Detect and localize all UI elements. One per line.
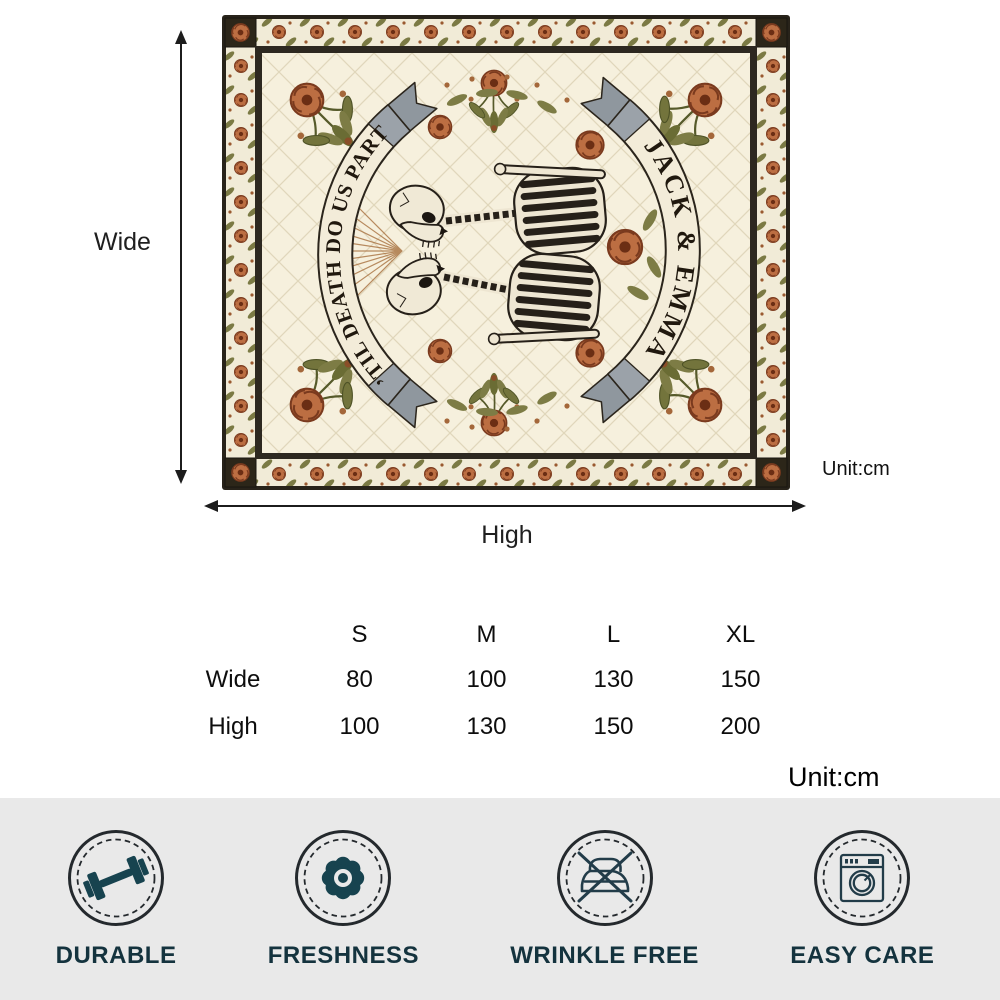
feature-easy-care: EASY CARE [790,828,934,970]
feature-bar: DURABLE FRESHNESS [0,798,1000,1000]
table-header-cell: XL [677,621,804,649]
table-header-cell: M [423,621,550,649]
table-row-label: High [170,713,296,741]
feature-label: EASY CARE [790,942,934,970]
feature-freshness: FRESHNESS [268,828,419,970]
dumbbell-icon [66,828,166,928]
table-cell: 130 [550,666,677,694]
feature-label: DURABLE [56,942,177,970]
table-cell: 150 [550,713,677,741]
feature-wrinkle-free: WRINKLE FREE [510,828,699,970]
high-label: High [470,521,544,550]
table-cell: 100 [423,666,550,694]
feature-durable: DURABLE [56,828,177,970]
table-cell: 80 [296,666,423,694]
table-cell: 130 [423,713,550,741]
wide-label: Wide [94,228,151,257]
table-header-cell: L [550,621,677,649]
vertical-dimension-arrow [170,28,192,486]
feature-label: FRESHNESS [268,942,419,970]
flower-icon [293,828,393,928]
size-table: S M L XL Wide 80 100 130 150 High 100 13… [170,614,804,750]
table-cell: 200 [677,713,804,741]
unit-label-diagram: Unit:cm [822,458,890,481]
horizontal-dimension-arrow [202,496,808,516]
table-header-cell: S [296,621,423,649]
table-cell: 150 [677,666,804,694]
quilt-product-image: ’TIL DEATH DO US PART JACK & EMMA [222,15,790,490]
unit-label-table: Unit:cm [788,762,880,793]
product-size-chart-page: ’TIL DEATH DO US PART JACK & EMMA [0,0,1000,1000]
feature-label: WRINKLE FREE [510,942,699,970]
no-iron-icon [555,828,655,928]
table-row-label: Wide [170,666,296,694]
center-rose [608,230,642,264]
table-cell: 100 [296,713,423,741]
washing-machine-icon [812,828,912,928]
